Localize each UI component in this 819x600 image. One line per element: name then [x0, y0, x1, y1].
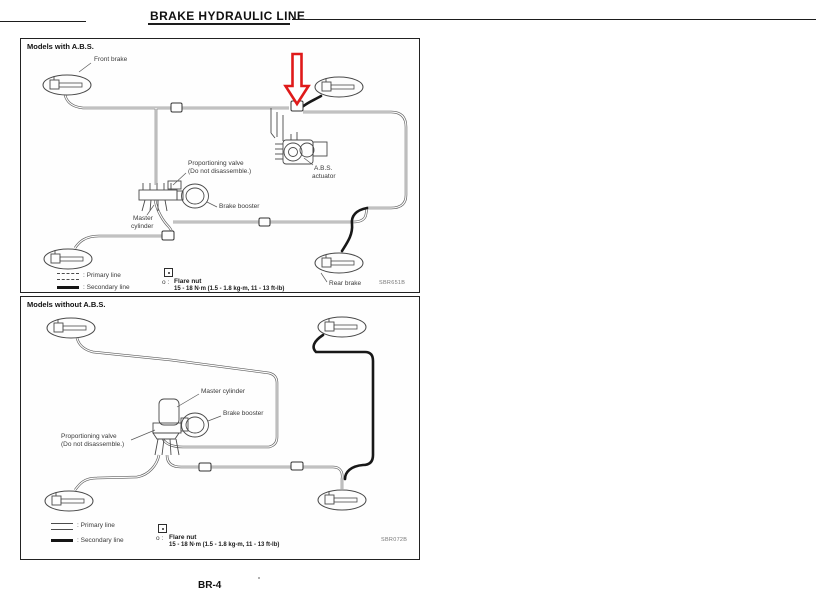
flare-nut-prefix: o : [156, 535, 163, 542]
no-abs-diagram-art [21, 297, 419, 558]
flare-nut-icon [158, 524, 167, 533]
front-brake-label: Front brake [94, 56, 127, 63]
front-left-brake [43, 75, 91, 95]
no-abs-diagram-panel: Models without A.B.S. [20, 296, 420, 560]
master-cylinder-label: Master cylinder [201, 388, 245, 395]
rear-brake [318, 490, 366, 510]
abs-diagram-panel: Models with A.B.S. [20, 38, 420, 293]
front-left-brake-lower [45, 491, 93, 511]
flare-nut-torque: 15 - 18 N·m (1.5 - 1.8 kg-m, 11 - 13 ft-… [169, 542, 279, 548]
front-left-brake [47, 318, 95, 338]
rear-brake [315, 253, 363, 273]
primary-line-legend: : Primary line [83, 272, 121, 279]
rear-right-brake-top [318, 317, 366, 337]
primary-line-swatch [57, 273, 79, 280]
brake-booster-label: Brake booster [219, 203, 259, 210]
flare-nut-icon [164, 268, 173, 277]
figure-code: SBR651B [379, 280, 405, 286]
scan-speck [258, 577, 260, 579]
proportioning-valve-label-line2: (Do not disassemble.) [188, 168, 251, 175]
title-underline [148, 23, 290, 25]
header-rule-right [292, 19, 816, 20]
secondary-line-legend: : Secondary line [83, 284, 130, 291]
abs-actuator-label-line1: A.B.S. [314, 165, 332, 172]
primary-line-swatch [51, 523, 73, 530]
actuator-feed-lines [271, 108, 283, 141]
rear-brake-label: Rear brake [329, 280, 361, 287]
proportioning-valve [168, 181, 181, 189]
abs-actuator-label-line2: actuator [312, 173, 336, 180]
brake-booster-label: Brake booster [223, 410, 263, 417]
master-cylinder-label-line2: cylinder [131, 223, 153, 230]
page-title: BRAKE HYDRAULIC LINE [150, 9, 290, 23]
red-arrow-annotation [280, 52, 316, 110]
flare-nut-prefix: o : [162, 279, 169, 286]
proportioning-valve-label-line1: Proportioning valve [188, 160, 244, 167]
proportioning-valve-label-line2: (Do not disassemble.) [61, 441, 124, 448]
flare-nut-label: Flare nut [169, 534, 196, 541]
secondary-line-legend: : Secondary line [77, 537, 124, 544]
secondary-brake-lines [314, 335, 373, 479]
flare-nut-label: Flare nut [174, 278, 201, 285]
rear-right-brake-top [315, 77, 363, 97]
figure-code: SBR072B [381, 537, 407, 543]
master-cylinder-assembly [139, 181, 209, 211]
primary-line-legend: : Primary line [77, 522, 115, 529]
page-number: BR-4 [198, 580, 221, 591]
secondary-line-swatch [57, 286, 79, 289]
proportioning-valve-label-line1: Proportioning valve [61, 433, 117, 440]
secondary-line-swatch [51, 539, 73, 542]
header-rule-left [0, 21, 86, 22]
front-left-brake-lower [44, 249, 92, 269]
proportioning-valve [153, 433, 179, 439]
flare-nut-torque: 15 - 18 N·m (1.5 - 1.8 kg-m, 11 - 13 ft-… [174, 286, 284, 292]
reservoir [159, 399, 179, 425]
master-cylinder-label-line1: Master [133, 215, 153, 222]
